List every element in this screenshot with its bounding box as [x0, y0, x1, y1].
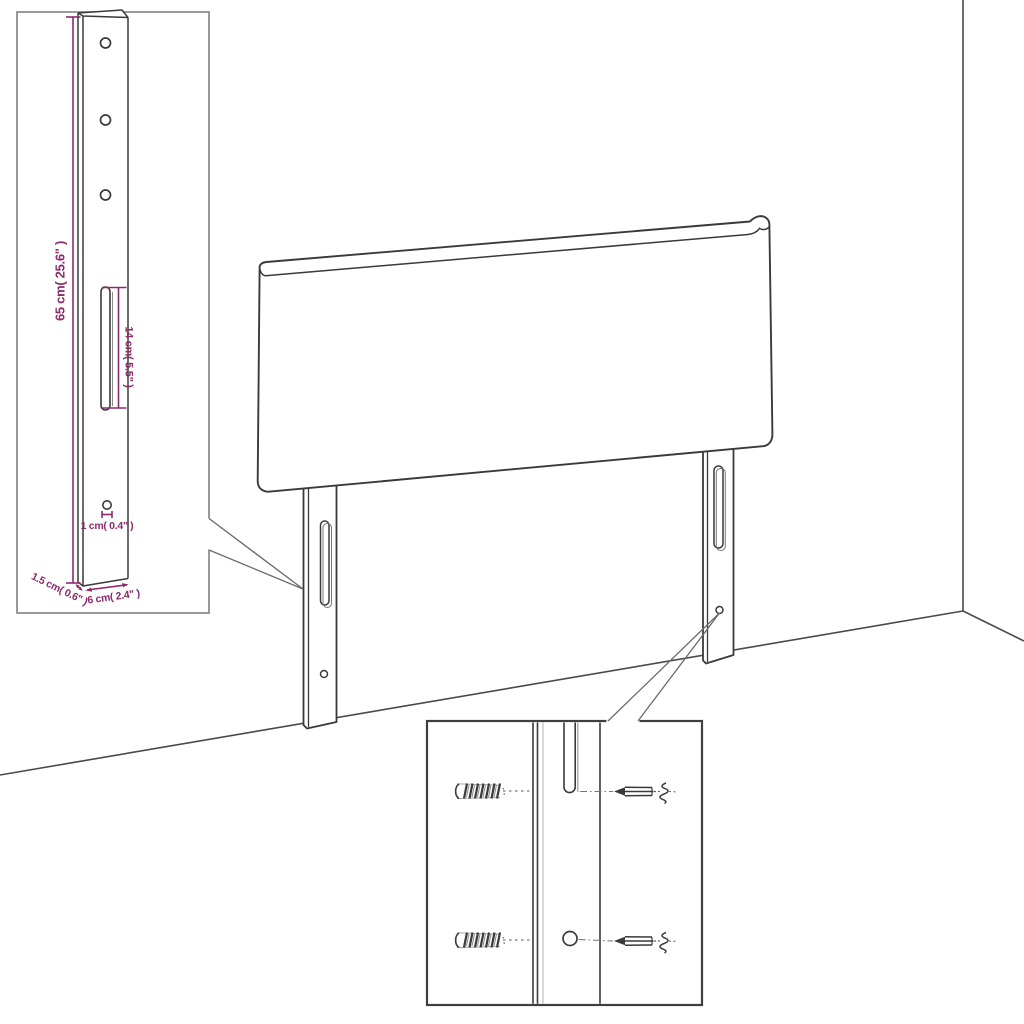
headboard-dimension-diagram: 65 cm( 25.6" ) 14 cm( 5.5" ) 1 cm( 0.4" … — [0, 0, 1024, 1024]
label-slot-length: 14 cm( 5.5" ) — [123, 326, 135, 388]
label-hole-diameter: 1 cm( 0.4" ) — [81, 520, 134, 532]
left-leg-screw-hole — [321, 671, 328, 678]
label-leg-height: 65 cm( 25.6" ) — [52, 241, 67, 321]
right-leg-screw-hole — [716, 607, 723, 614]
leg-detail-fill — [78, 10, 128, 586]
headboard-left-leg — [304, 466, 337, 729]
panel-outline — [258, 216, 773, 492]
diagram-canvas: 65 cm( 25.6" ) 14 cm( 5.5" ) 1 cm( 0.4" … — [0, 0, 1024, 1024]
headboard-panel — [258, 216, 773, 492]
callout-gap — [206, 519, 213, 550]
leg-detail-drawing — [78, 10, 128, 586]
